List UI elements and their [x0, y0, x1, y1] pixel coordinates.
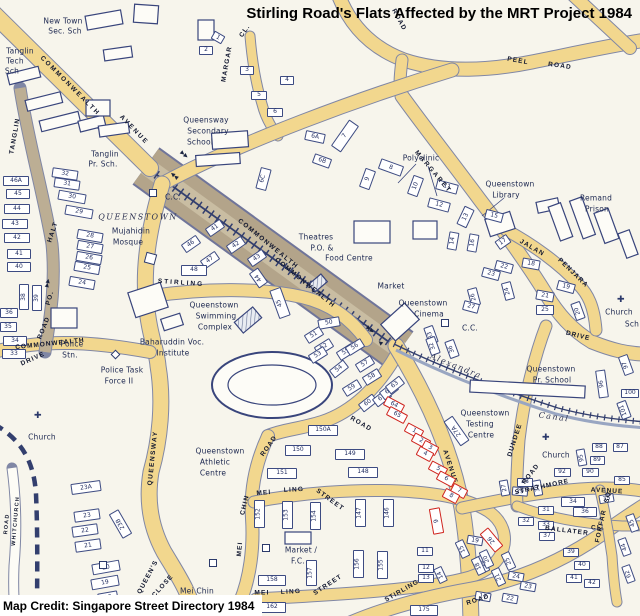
flat-number: 25 — [541, 307, 549, 313]
flat-number: 101 — [619, 404, 629, 417]
flat-number: 50 — [325, 319, 334, 326]
flat-number: 42 — [588, 580, 596, 586]
flat-number: 3 — [245, 67, 249, 73]
flat-154: 154 — [310, 502, 321, 530]
flat-number: 36 — [448, 344, 456, 353]
building-symbol-icon — [262, 544, 270, 552]
flat-number: 34 — [569, 499, 577, 505]
flat-12: 12 — [418, 564, 434, 573]
place-label-theatres: Theatres — [299, 233, 334, 242]
place-label-market--: Market / — [285, 546, 317, 555]
flat-number: 12 — [435, 201, 444, 209]
place-label-p.o.--: P.O. & — [310, 244, 333, 253]
flat-148: 148 — [348, 467, 378, 478]
flat-number: 65 — [392, 411, 402, 420]
flat-number: 155 — [379, 559, 385, 570]
flat-number: 149 — [344, 451, 355, 457]
flat-number: 45 — [276, 298, 284, 307]
flat-number: 18 — [474, 561, 483, 570]
flat-33: 33 — [2, 349, 26, 359]
place-label-church: Church — [28, 433, 56, 442]
flat-number: 31 — [542, 507, 550, 513]
flat-number: 23 — [83, 511, 91, 518]
place-label-sch: Sch — [625, 320, 639, 329]
place-label-sec.-sch: Sec. Sch — [48, 27, 82, 36]
place-label-stn.: Stn. — [62, 351, 78, 360]
flat-number: 26 — [470, 293, 478, 302]
flat-number: 27 — [467, 303, 476, 311]
flat-42: 42 — [4, 233, 30, 243]
flat-4: 4 — [280, 76, 294, 85]
flat-number: 19 — [101, 578, 110, 585]
church-icon: ✚ — [542, 434, 550, 443]
flat-43: 43 — [2, 219, 28, 229]
flat-number: 36 — [5, 310, 13, 316]
flat-number: 6C — [259, 174, 267, 183]
church-icon: ✚ — [34, 412, 42, 421]
flat-number: 48 — [190, 267, 198, 273]
flat-150A: 150A — [308, 425, 338, 436]
flat-156: 156 — [353, 550, 364, 578]
church-icon: ✚ — [617, 296, 625, 305]
flat-42: 42 — [584, 579, 600, 588]
flat-number: 41 — [210, 223, 220, 232]
flat-39: 39 — [32, 285, 42, 311]
flat-32: 32 — [518, 517, 534, 526]
flat-85: 85 — [614, 476, 630, 485]
flat-149: 149 — [335, 449, 365, 460]
flat-151: 151 — [267, 468, 297, 479]
flat-number: 154 — [312, 510, 318, 521]
flat-number: 23 — [487, 270, 496, 278]
flat-number: 18 — [527, 260, 536, 267]
place-label-cinema: Cinema — [414, 310, 444, 319]
flat-number: 44 — [13, 206, 21, 212]
flat-48: 48 — [181, 265, 207, 276]
flat-number: 7 — [341, 133, 348, 140]
flat-number: 10 — [411, 181, 419, 190]
flat-number: 31 — [63, 180, 71, 187]
flat-number: 2 — [204, 47, 208, 53]
place-label-queenstown: Queenstown — [399, 299, 448, 308]
place-label-baharuddin-voc.: Baharuddin Voc. — [140, 338, 204, 347]
place-label-swimming: Swimming — [196, 312, 237, 321]
flat-number: 21 — [84, 541, 92, 548]
flat-number: 6A — [310, 133, 319, 141]
building-symbol-icon — [149, 189, 157, 197]
flat-number: 43 — [11, 221, 19, 227]
place-label-pr.-school: Pr. School — [533, 376, 571, 385]
place-label-queenstown: Queenstown — [486, 180, 535, 189]
flat-92: 92 — [554, 468, 571, 477]
flat-3: 3 — [240, 66, 254, 75]
building-symbol-icon — [143, 251, 156, 264]
flat-number: 11 — [421, 548, 429, 554]
flat-number: 63 — [390, 380, 400, 389]
flat-number: 6 — [273, 109, 277, 115]
place-label-c.c.: C.C. — [165, 193, 181, 202]
flat-number: 152 — [256, 508, 262, 519]
flat-number: 5 — [257, 92, 261, 98]
flat-number: 28 — [86, 232, 95, 239]
flat-number: 62 — [624, 569, 632, 578]
flat-number: 23B — [114, 517, 125, 530]
road-label-ling: LING — [281, 588, 302, 596]
flat-46A: 46A — [3, 176, 29, 186]
flat-number: 146 — [385, 507, 391, 518]
place-label-tanglin: Tanglin — [6, 47, 34, 56]
flat-number: 157 — [308, 567, 314, 578]
flat-41: 41 — [566, 574, 582, 583]
flat-11: 11 — [417, 547, 433, 556]
flat-36: 36 — [573, 507, 597, 517]
place-label-polyclinic: Polyclinic — [403, 154, 440, 163]
flat-number: 43 — [252, 253, 262, 262]
flat-number: 158 — [266, 577, 277, 583]
flat-150: 150 — [285, 445, 311, 456]
flat-number: 40 — [15, 264, 23, 270]
place-label-school: School — [187, 138, 213, 147]
flat-number: 9 — [433, 519, 440, 524]
place-label-complex: Complex — [198, 323, 232, 332]
flat-number: 147 — [357, 507, 363, 518]
flat-number: 42 — [13, 235, 21, 241]
flat-89: 89 — [590, 456, 605, 465]
flat-number: 9 — [364, 176, 371, 182]
flat-number: 24 — [504, 287, 512, 296]
place-label-queensway: Queensway — [183, 116, 229, 125]
flat-number: 13 — [422, 575, 430, 581]
flat-number: 156 — [355, 558, 361, 569]
flat-number: 26 — [486, 535, 496, 545]
flat-40: 40 — [574, 561, 590, 570]
flat-number: 150A — [315, 427, 331, 433]
place-label-institute: Institute — [157, 349, 190, 358]
flat-44: 44 — [4, 204, 30, 214]
flat-number: 37 — [543, 533, 551, 539]
flat-number: 12 — [422, 565, 430, 571]
flat-number: 32 — [61, 170, 69, 177]
flat-number: 54 — [334, 364, 344, 373]
flat-36: 36 — [0, 308, 18, 318]
flat-number: 59 — [347, 383, 357, 392]
flat-number: 1 — [215, 33, 221, 40]
flat-number: 41 — [15, 251, 23, 257]
flat-155: 155 — [377, 551, 388, 579]
flat-number: 44 — [620, 542, 628, 551]
flat-40: 40 — [7, 262, 31, 272]
place-label-centre: Centre — [468, 431, 494, 440]
flat-number: 17 — [498, 237, 508, 246]
place-label-church: Church — [542, 451, 570, 460]
place-label-secondary: Secondary — [187, 127, 229, 136]
place-label-athletic: Athletic — [200, 458, 230, 467]
flat-number: 87 — [616, 444, 624, 450]
flat-number: 21 — [494, 572, 503, 581]
flat-number: 175 — [418, 607, 429, 613]
flat-146: 146 — [383, 499, 394, 527]
place-label-mosque: Mosque — [113, 238, 143, 247]
flat-147: 147 — [355, 499, 366, 527]
flat-number: 56 — [350, 342, 360, 351]
road-label-mei: MEI — [256, 489, 272, 497]
flat-90: 90 — [582, 468, 599, 477]
flat-number: 14 — [436, 570, 445, 579]
flat-number: 27 — [86, 243, 95, 250]
place-label-food-centre: Food Centre — [325, 254, 373, 263]
flat-number: 40 — [578, 562, 586, 568]
flat-number: 148 — [357, 469, 368, 475]
flat-number: 32 — [429, 341, 437, 350]
flat-number: 85 — [618, 477, 626, 483]
flat-87: 87 — [613, 443, 628, 452]
flat-38: 38 — [19, 284, 29, 310]
flat-number: 15 — [490, 212, 499, 220]
flat-number: 162 — [266, 604, 277, 610]
flat-number: 13 — [461, 212, 470, 221]
flat-number: 24 — [78, 279, 87, 286]
flat-number: 42 — [231, 240, 241, 249]
flat-number: 25 — [504, 556, 513, 565]
place-label-police-task: Police Task — [101, 366, 144, 375]
flat-number: 41 — [570, 575, 578, 581]
flat-175: 175 — [410, 605, 438, 616]
flat-number: 39 — [34, 294, 40, 302]
flat-88: 88 — [592, 443, 607, 452]
flat-number: 26 — [85, 254, 94, 261]
flat-number: 23 — [524, 582, 533, 589]
flat-number: 53 — [313, 350, 323, 359]
flat-number: 29 — [75, 208, 84, 215]
building-symbol-icon — [99, 561, 107, 569]
place-label-queenstown: Queenstown — [190, 301, 239, 310]
flat-number: 22 — [500, 263, 509, 271]
flat-number: 44 — [253, 273, 262, 283]
place-label-remand: Remand — [580, 194, 612, 203]
flat-152: 152 — [254, 500, 265, 528]
flat-number: 15 — [458, 544, 467, 553]
flat-number: 20 — [482, 554, 491, 563]
flat-number: 27 — [500, 484, 507, 493]
flat-number: 96 — [598, 380, 605, 388]
place-label-church: Church — [605, 308, 633, 317]
place-label-prison: Prison — [585, 205, 609, 214]
flat-5: 5 — [251, 91, 267, 100]
flat-number: 36 — [581, 509, 589, 515]
place-label-queenstown: Queenstown — [461, 409, 510, 418]
flat-number: 16 — [469, 239, 476, 248]
flat-number: 20 — [574, 306, 582, 315]
place-label-tech: Tech — [6, 57, 24, 66]
building-symbol-icon — [209, 559, 217, 567]
flat-number: 6B — [317, 157, 327, 165]
place-label-centre: Centre — [200, 469, 226, 478]
flat-25: 25 — [536, 305, 554, 315]
flat-number: 45 — [14, 191, 22, 197]
flat-number: 46 — [186, 239, 196, 248]
flat-162: 162 — [258, 602, 286, 613]
flat-31: 31 — [538, 506, 554, 515]
flat-number: 22 — [506, 594, 515, 601]
flat-number: 45 — [628, 518, 636, 527]
road-label-mei: MEI — [236, 541, 244, 557]
flat-number: 90 — [586, 469, 594, 475]
flat-number: 89 — [593, 457, 601, 463]
flat-45: 45 — [6, 189, 30, 199]
place-label-pr.-sch.: Pr. Sch. — [88, 160, 117, 169]
place-label-f.c.: F.C. — [291, 557, 305, 566]
place-label-tanglin: Tanglin — [91, 150, 119, 159]
flat-number: 30 — [68, 193, 77, 200]
place-label-queenstown: Queenstown — [196, 447, 245, 456]
place-label-mujahidin: Mujahidin — [112, 227, 150, 236]
flat-number: 95 — [577, 453, 584, 462]
flat-number: 47 — [205, 255, 215, 264]
flat-number: 4 — [285, 77, 289, 83]
flat-number: 39 — [567, 549, 575, 555]
flat-number: 58 — [367, 372, 377, 381]
flat-number: 8 — [448, 492, 454, 499]
flat-number: 24 — [512, 572, 521, 579]
flat-35: 35 — [0, 322, 17, 332]
place-label-queenstown: Queenstown — [527, 365, 576, 374]
flat-39: 39 — [563, 548, 579, 557]
flat-number: 97 — [622, 360, 630, 369]
flat-number: 51 — [309, 330, 319, 339]
place-label-library: Library — [492, 191, 520, 200]
road-label-ling: LING — [284, 486, 305, 494]
place-label-testing: Testing — [466, 420, 494, 429]
flat-number: 35 — [4, 324, 12, 330]
flat-34: 34 — [561, 497, 585, 507]
place-label-sch: Sch — [5, 67, 19, 76]
flat-13: 13 — [418, 574, 434, 583]
flat-number: 150 — [292, 447, 303, 453]
flat-number: 14 — [449, 237, 456, 246]
flat-100: 100 — [621, 389, 639, 398]
flat-number: 8 — [388, 164, 394, 171]
flat-number: 22 — [81, 526, 89, 533]
flat-number: 153 — [284, 509, 290, 520]
place-label-force-ii: Force II — [105, 377, 134, 386]
map-title: Stirling Road's Flats Affected by the MR… — [246, 5, 632, 22]
flat-number: 4 — [422, 450, 428, 457]
flat-number: 19 — [562, 283, 571, 291]
flat-41: 41 — [7, 249, 31, 259]
flat-number: 100 — [624, 390, 635, 396]
flat-number: 151 — [276, 470, 287, 476]
building-symbol-icon — [441, 319, 449, 327]
flat-number: 38 — [21, 293, 27, 301]
flat-157: 157 — [306, 560, 317, 586]
place-label-queenstown: QUEENSTOWN — [98, 213, 178, 222]
flat-number: 57 — [360, 359, 370, 368]
flat-number: 88 — [595, 444, 603, 450]
place-label-police: Police — [61, 340, 84, 349]
flat-number: 33 — [10, 351, 18, 357]
place-label-c.c.: C.C. — [462, 324, 478, 333]
flat-153: 153 — [282, 501, 293, 529]
credit-line: Map Credit: Singapore Street Directory 1… — [0, 595, 262, 616]
flat-number: 46A — [10, 178, 22, 184]
flat-number: 21 — [541, 292, 550, 299]
flat-number: 19 — [471, 536, 480, 543]
flat-number: 23A — [80, 483, 92, 491]
place-label-market: Market — [378, 282, 405, 291]
flat-2: 2 — [199, 46, 213, 55]
flat-6: 6 — [267, 108, 283, 117]
map-canvas: Stirling Road's Flats Affected by the MR… — [0, 0, 640, 616]
place-label-new-town: New Town — [43, 17, 82, 26]
flat-number: 92 — [558, 469, 566, 475]
flat-158: 158 — [258, 575, 286, 586]
flat-number: 6 — [443, 475, 449, 482]
flat-number: 32 — [522, 518, 530, 524]
flat-number: 25 — [83, 264, 92, 271]
